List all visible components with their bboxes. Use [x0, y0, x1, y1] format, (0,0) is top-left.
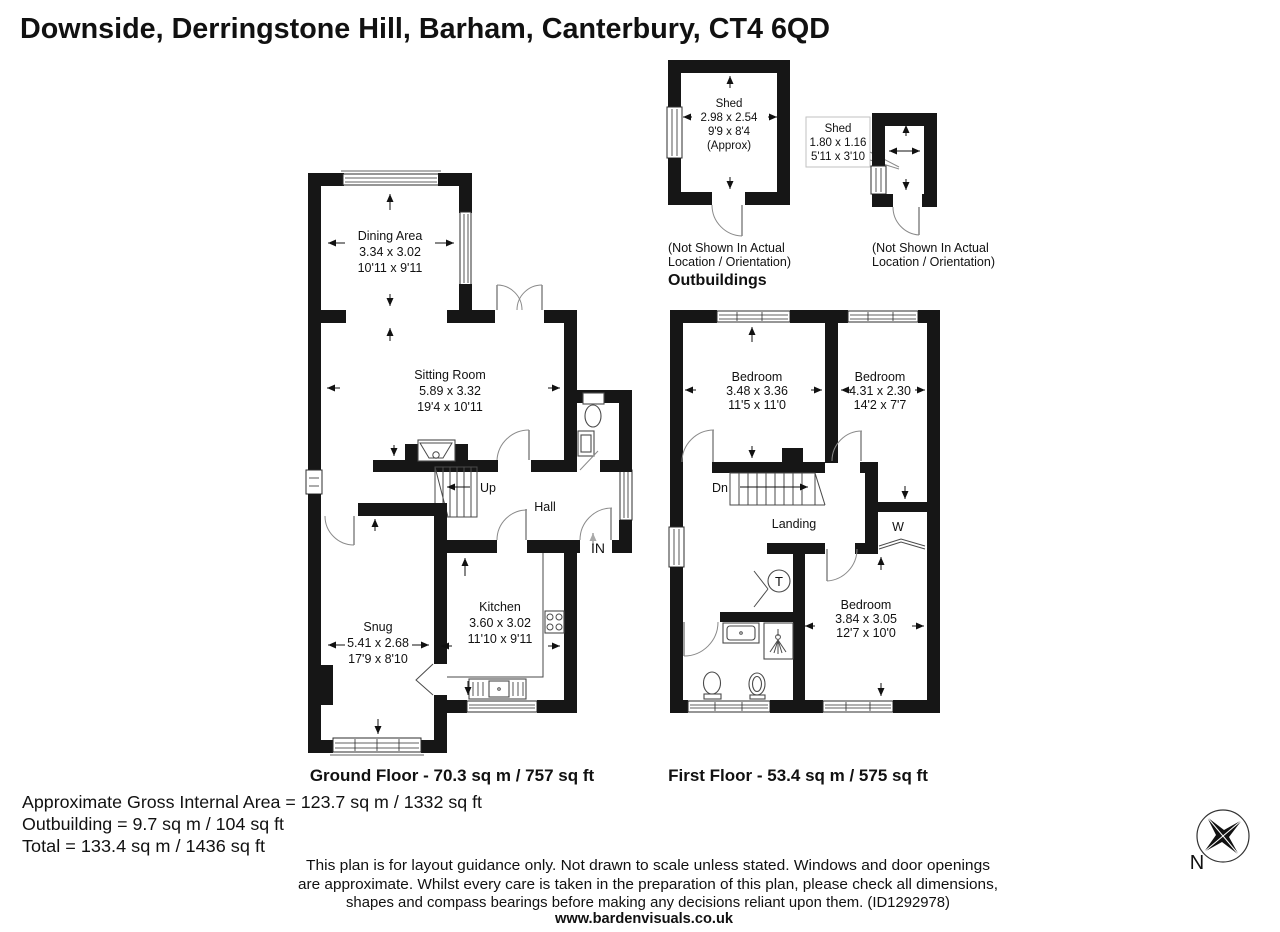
bedroom3-name: Bedroom [841, 598, 892, 612]
bedroom1-dim-m: 3.48 x 3.36 [726, 384, 788, 398]
disclaimer: This plan is for layout guidance only. N… [298, 857, 998, 927]
shed1-approx: (Approx) [707, 140, 751, 152]
sitting-dim-m: 5.89 x 3.32 [419, 384, 481, 398]
shed-1: Shed 2.98 x 2.54 9'9 x 8'4 (Approx) (Not… [667, 60, 791, 269]
kitchen-dim-ft: 11'10 x 9'11 [468, 632, 533, 646]
outbuilding-area: Outbuilding = 9.7 sq m / 104 sq ft [22, 814, 284, 834]
dining-name: Dining Area [358, 229, 423, 243]
bedroom2-dim-m: 4.31 x 2.30 [849, 384, 911, 398]
shed1-dim-ft: 9'9 x 8'4 [708, 126, 751, 138]
north-label: N [1190, 852, 1204, 874]
shed2-note-2: Location / Orientation) [872, 255, 995, 269]
entrance-in-label: IN [591, 540, 605, 556]
shed2-name: Shed [825, 123, 852, 135]
shed2-dim-ft: 5'11 x 3'10 [811, 151, 865, 163]
shed1-name: Shed [716, 98, 743, 110]
disclaimer-line-3: shapes and compass bearings before makin… [346, 894, 950, 911]
hall-name: Hall [534, 500, 556, 514]
shed2-dim-m: 1.80 x 1.16 [810, 137, 867, 149]
compass-rose: N [1190, 810, 1249, 874]
kitchen-name: Kitchen [479, 600, 521, 614]
shed1-note-2: Location / Orientation) [668, 255, 791, 269]
snug-dim-ft: 17'9 x 8'10 [348, 652, 408, 666]
website-link: www.bardenvisuals.co.uk [554, 910, 734, 927]
kitchen-dim-m: 3.60 x 3.02 [469, 616, 531, 630]
stairs-up-label: Up [480, 481, 496, 495]
outbuildings-heading: Outbuildings [668, 272, 767, 289]
sitting-name: Sitting Room [414, 368, 486, 382]
shed2-note-1: (Not Shown In Actual [872, 241, 989, 255]
sitting-dim-ft: 19'4 x 10'11 [417, 400, 483, 414]
tank-label: T [775, 574, 783, 589]
bedroom2-dim-ft: 14'2 x 7'7 [854, 398, 907, 412]
shed-2: Shed 1.80 x 1.16 5'11 x 3'10 (Not Shown … [806, 113, 995, 269]
snug-dim-m: 5.41 x 2.68 [347, 636, 409, 650]
snug-name: Snug [363, 620, 392, 634]
bedroom3-dim-ft: 12'7 x 10'0 [836, 626, 896, 640]
bedroom3-dim-m: 3.84 x 3.05 [835, 612, 897, 626]
dining-dim-ft: 10'11 x 9'11 [358, 261, 423, 275]
floorplan-canvas: Downside, Derringstone Hill, Barham, Can… [0, 0, 1280, 932]
bedroom1-dim-ft: 11'5 x 11'0 [728, 398, 786, 412]
first-floor-caption: First Floor - 53.4 sq m / 575 sq ft [668, 766, 928, 785]
landing-name: Landing [772, 517, 817, 531]
bedroom2-name: Bedroom [855, 370, 906, 384]
wardrobe-label: W [892, 520, 904, 534]
disclaimer-line-1: This plan is for layout guidance only. N… [306, 857, 990, 874]
total-area: Total = 133.4 sq m / 1436 sq ft [22, 836, 265, 856]
gross-internal-area: Approximate Gross Internal Area = 123.7 … [22, 792, 482, 812]
ground-floor-caption: Ground Floor - 70.3 sq m / 757 sq ft [310, 766, 595, 785]
disclaimer-line-2: are approximate. Whilst every care is ta… [298, 876, 998, 893]
shed1-note-1: (Not Shown In Actual [668, 241, 785, 255]
shed1-dim-m: 2.98 x 2.54 [701, 112, 759, 124]
floorplan-page: Downside, Derringstone Hill, Barham, Can… [0, 0, 1280, 932]
first-floor-plan: Bedroom 3.48 x 3.36 11'5 x 11'0 Bedroom … [669, 310, 940, 713]
bedroom1-name: Bedroom [732, 370, 783, 384]
stairs-dn-label: Dn [712, 481, 728, 495]
area-summary: Approximate Gross Internal Area = 123.7 … [22, 792, 482, 856]
page-title: Downside, Derringstone Hill, Barham, Can… [20, 13, 830, 45]
ground-floor-plan: Dining Area 3.34 x 3.02 10'11 x 9'11 Sit… [306, 171, 632, 755]
dining-dim-m: 3.34 x 3.02 [359, 245, 421, 259]
